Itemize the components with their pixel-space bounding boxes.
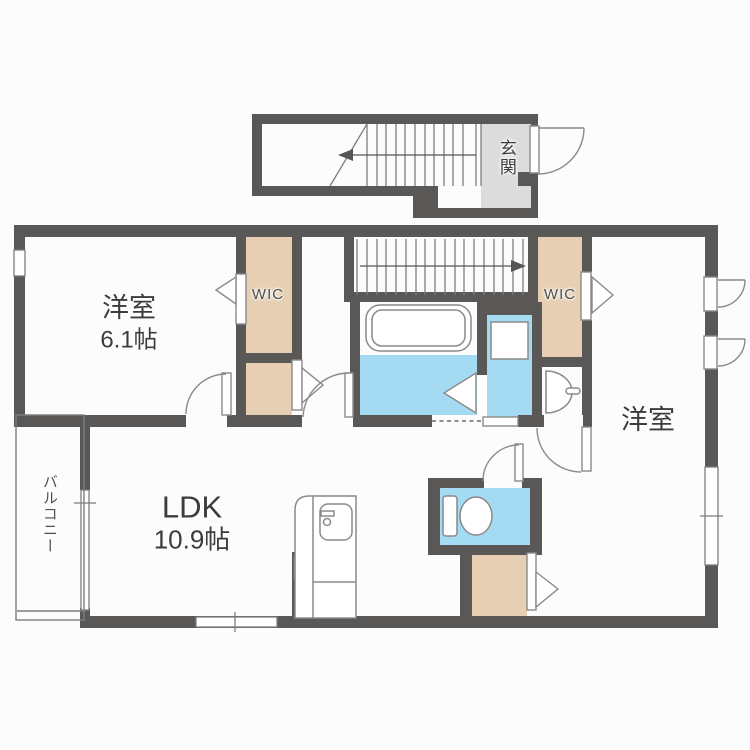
toilet-door-leaf <box>515 444 523 481</box>
floor-plan-drawing <box>0 0 750 750</box>
bedroom1-size-label: 6.1帖 <box>100 327 157 352</box>
ldk-label: LDK <box>162 492 222 525</box>
entrance-door-frame <box>530 126 539 173</box>
bedroom2-door-frame <box>582 427 591 471</box>
toilet-door-swing <box>483 445 519 481</box>
bedroom2-label: 洋室 <box>621 406 675 434</box>
bedroom1-left-window <box>14 250 25 276</box>
floor-plan: 洋室 6.1帖 WIC WIC 洋室 LDK 10.9帖 バルコニー 玄関 <box>0 0 750 750</box>
washing-machine-pan <box>491 322 528 359</box>
closet2-door-fold-indicator <box>536 572 558 607</box>
toilet-tank <box>443 496 457 536</box>
toilet-bowl <box>460 497 492 535</box>
ldk-bottom-window <box>196 617 277 627</box>
hall-door-leaf <box>345 373 353 417</box>
wic2-label: WIC <box>544 287 576 303</box>
wic1-label: WIC <box>252 287 284 303</box>
closet1-area <box>246 363 292 415</box>
wic2-door-frame <box>581 272 591 320</box>
exterior-door2-swing <box>718 339 745 366</box>
exterior-door1-frame <box>704 277 717 311</box>
closet1-door-fold-indicator <box>302 368 323 403</box>
kitchen-faucet-spout <box>321 511 334 516</box>
bedroom2-door-swing <box>537 428 581 472</box>
entrance-label: 玄関 <box>497 139 515 177</box>
kitchen-faucet-knob <box>324 519 331 526</box>
bedroom1-door-opening <box>186 415 227 427</box>
washroom-door-leaf <box>483 417 518 426</box>
closet2-door-frame <box>527 553 536 610</box>
bedroom1-door-leaf <box>222 373 231 415</box>
upper-stairs-steps <box>357 239 523 295</box>
balcony-label: バルコニー <box>41 474 57 554</box>
bedroom1-label: 洋室 <box>102 294 156 322</box>
balcony-window <box>81 490 89 610</box>
bathroom-door-opening <box>477 375 487 415</box>
wic2-door-fold-indicator <box>592 277 613 313</box>
washbasin-faucet <box>566 388 580 394</box>
entrance-door-swing <box>538 128 584 174</box>
bedroom1-door-swing <box>186 374 226 414</box>
ldk-size-label: 10.9帖 <box>154 526 231 553</box>
bathtub-inner <box>372 310 465 346</box>
closet1-door-frame <box>292 360 302 410</box>
closet2-area <box>472 555 527 617</box>
exterior-door1-swing <box>718 280 745 307</box>
basin-niche-opening <box>544 415 583 427</box>
upper-stairs-arrow-head <box>511 260 526 272</box>
exterior-door2-frame <box>704 336 717 369</box>
wic1-door-fold-indicator <box>216 277 236 304</box>
wic1-door-frame <box>236 274 246 324</box>
